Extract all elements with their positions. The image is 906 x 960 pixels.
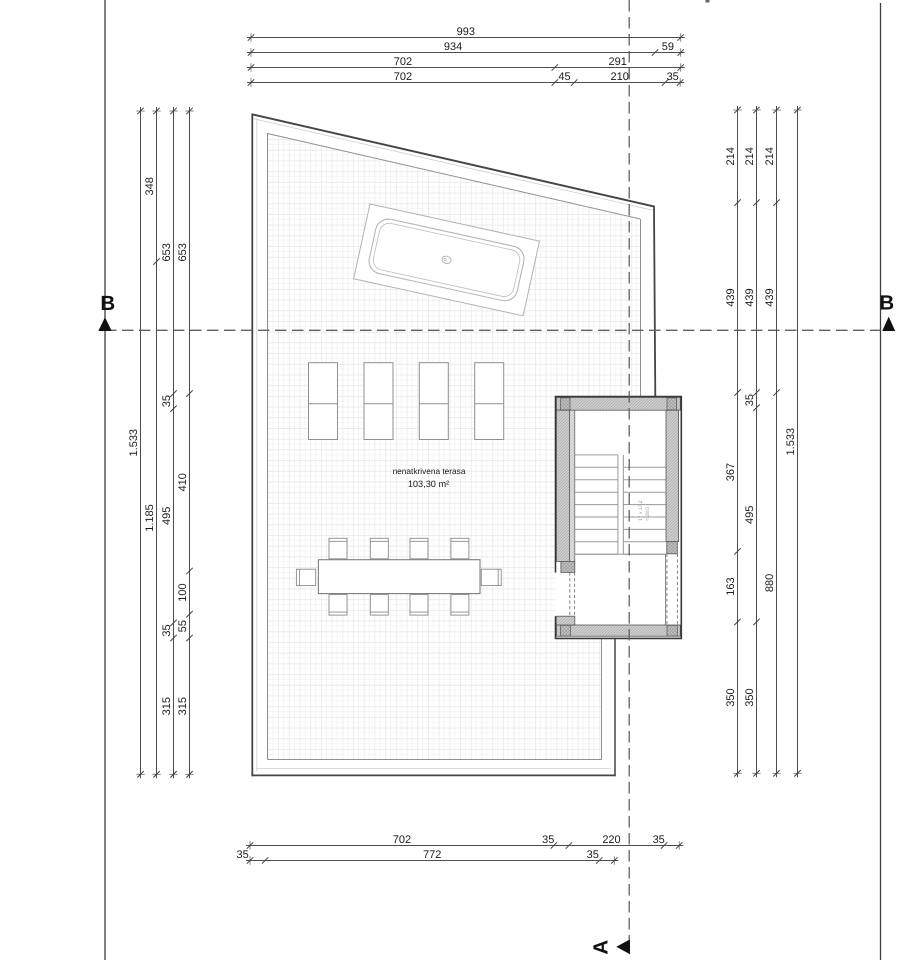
svg-text:103,30 m²: 103,30 m² — [408, 479, 449, 489]
svg-text:350: 350 — [744, 688, 756, 706]
svg-text:59: 59 — [662, 41, 674, 53]
svg-text:315: 315 — [177, 697, 189, 715]
svg-text:35: 35 — [161, 395, 173, 407]
svg-text:410: 410 — [177, 473, 189, 491]
svg-text:35: 35 — [587, 849, 599, 861]
svg-text:495: 495 — [161, 507, 173, 525]
svg-text:214: 214 — [764, 147, 776, 165]
svg-text:nenatkrivena terasa: nenatkrivena terasa — [393, 466, 466, 476]
svg-text:348: 348 — [144, 177, 156, 195]
svg-text:934: 934 — [444, 41, 462, 53]
svg-text:214: 214 — [744, 147, 756, 165]
svg-text:163: 163 — [725, 577, 737, 595]
svg-text:100: 100 — [177, 583, 189, 601]
svg-text:210: 210 — [611, 71, 629, 83]
svg-text:1.185: 1.185 — [144, 504, 156, 532]
svg-text:702: 702 — [393, 834, 411, 846]
svg-text:653: 653 — [161, 243, 173, 261]
svg-text:993: 993 — [457, 26, 475, 38]
svg-text:439: 439 — [764, 288, 776, 306]
svg-text:702: 702 — [394, 56, 412, 68]
svg-text:315: 315 — [161, 697, 173, 715]
svg-text:35: 35 — [667, 71, 679, 83]
svg-text:17 x 17,2: 17 x 17,2 — [638, 500, 644, 521]
svg-text:439: 439 — [744, 288, 756, 306]
svg-text:35: 35 — [161, 624, 173, 636]
svg-text:367: 367 — [725, 463, 737, 481]
svg-text:35: 35 — [653, 834, 665, 846]
svg-text:B: B — [879, 292, 894, 315]
svg-text:653: 653 — [177, 243, 189, 261]
svg-text:1.533: 1.533 — [128, 429, 140, 457]
svg-text:702: 702 — [394, 71, 412, 83]
svg-text:220: 220 — [602, 834, 620, 846]
svg-text:35: 35 — [744, 394, 756, 406]
svg-text:214: 214 — [725, 147, 737, 165]
svg-text:55: 55 — [177, 620, 189, 632]
svg-text:880: 880 — [764, 574, 776, 592]
svg-text:35: 35 — [236, 849, 248, 861]
svg-text:1.533: 1.533 — [785, 428, 797, 456]
svg-text:439: 439 — [725, 288, 737, 306]
svg-text:B: B — [100, 292, 115, 315]
svg-text:291: 291 — [609, 56, 627, 68]
svg-text:45: 45 — [558, 71, 570, 83]
svg-text:495: 495 — [744, 506, 756, 524]
svg-text:35: 35 — [542, 834, 554, 846]
svg-text:A: A — [590, 940, 613, 955]
svg-text:772: 772 — [423, 849, 441, 861]
svg-text:350: 350 — [725, 688, 737, 706]
svg-text:= 28,0: = 28,0 — [645, 507, 651, 521]
